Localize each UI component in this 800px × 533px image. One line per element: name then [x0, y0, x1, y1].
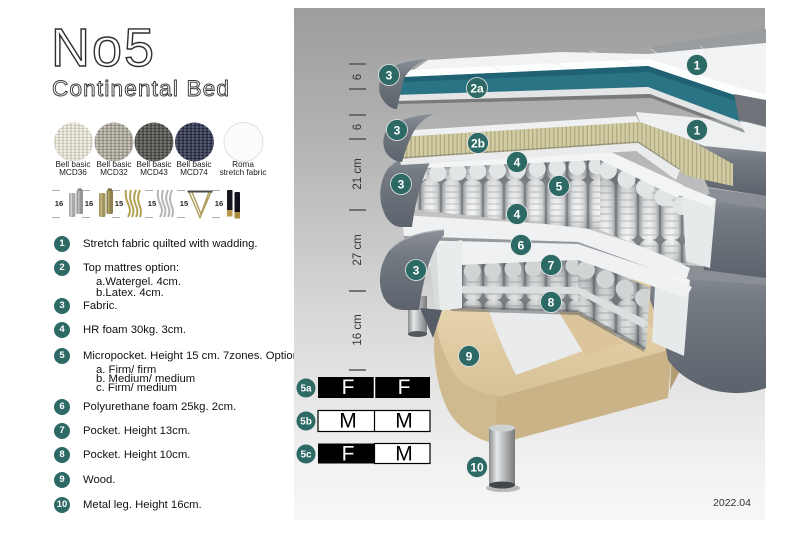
svg-text:4: 4 — [514, 156, 521, 170]
svg-text:5c: 5c — [300, 450, 312, 461]
svg-text:F: F — [342, 376, 355, 399]
svg-text:M: M — [395, 410, 413, 433]
svg-text:3: 3 — [413, 264, 420, 278]
svg-text:21 cm: 21 cm — [352, 158, 364, 189]
svg-text:4: 4 — [514, 208, 521, 222]
svg-text:6: 6 — [352, 124, 364, 130]
svg-text:6: 6 — [518, 239, 525, 253]
svg-text:5a: 5a — [300, 384, 312, 395]
svg-text:1: 1 — [694, 124, 701, 138]
svg-text:16 cm: 16 cm — [352, 314, 364, 345]
svg-text:F: F — [398, 376, 411, 399]
svg-text:9: 9 — [466, 350, 473, 364]
svg-text:M: M — [339, 410, 357, 433]
svg-text:10: 10 — [470, 461, 484, 475]
svg-text:2a: 2a — [470, 82, 484, 96]
svg-text:2b: 2b — [471, 137, 485, 151]
svg-text:1: 1 — [694, 59, 701, 73]
svg-text:M: M — [395, 443, 413, 466]
svg-text:3: 3 — [386, 69, 393, 83]
svg-text:3: 3 — [398, 178, 405, 192]
svg-text:F: F — [342, 443, 355, 466]
svg-text:27 cm: 27 cm — [352, 234, 364, 265]
svg-text:3: 3 — [394, 124, 401, 138]
svg-text:5: 5 — [556, 180, 563, 194]
svg-text:6: 6 — [352, 74, 364, 80]
svg-text:5b: 5b — [300, 417, 312, 428]
svg-text:8: 8 — [548, 296, 555, 310]
svg-text:7: 7 — [548, 259, 555, 273]
svg-text:2022.04: 2022.04 — [713, 497, 751, 509]
